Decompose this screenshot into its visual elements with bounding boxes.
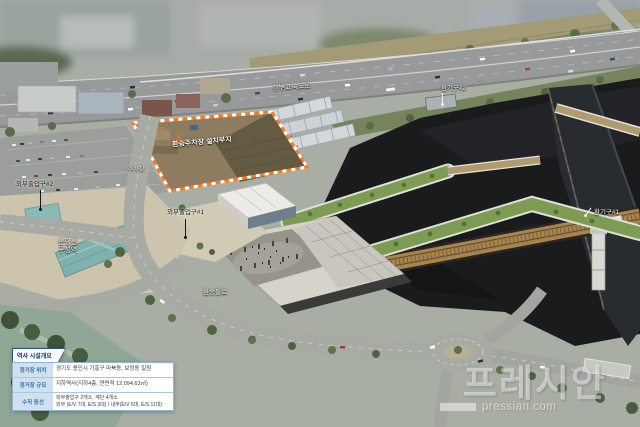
table-row: 수직 동선 외부출입구 2개소, 계단 4개소 외부 (E/V 7대, E/S … [13, 392, 173, 410]
row-label: 수직 동선 [13, 393, 53, 410]
news-photo-aerial-rendering: 경부고속도로 환기구#2 환승주차장 설치부지 주차장 외부출입구#2 외부출입… [0, 0, 640, 427]
row-value: 외부출입구 2개소, 계단 4개소 외부 (E/V 7대, E/S 3대) / … [53, 393, 173, 410]
table-row: 정거장 위치 경기도 용인시 기흥구 마북동, 보정동 일원 [13, 363, 173, 377]
row-value: 지하역사(지하4층, 연면적 12,094.63㎡) [53, 378, 173, 392]
station-info-box: 역사 시설개요 정거장 위치 경기도 용인시 기흥구 마북동, 보정동 일원 정… [12, 348, 174, 411]
info-box-title: 역사 시설개요 [13, 351, 52, 360]
info-box-table: 정거장 위치 경기도 용인시 기흥구 마북동, 보정동 일원 정거장 규모 지하… [12, 362, 174, 411]
bridge-tower [590, 226, 607, 290]
row-value: 경기도 용인시 기흥구 마북동, 보정동 일원 [53, 363, 173, 377]
info-box-title-tab: 역사 시설개요 [12, 348, 66, 362]
roundabout [422, 333, 494, 371]
row-label: 정거장 위치 [13, 363, 53, 377]
row-label: 정거장 규모 [13, 378, 53, 392]
table-row: 정거장 규모 지하역사(지하4층, 연면적 12,094.63㎡) [13, 377, 173, 392]
